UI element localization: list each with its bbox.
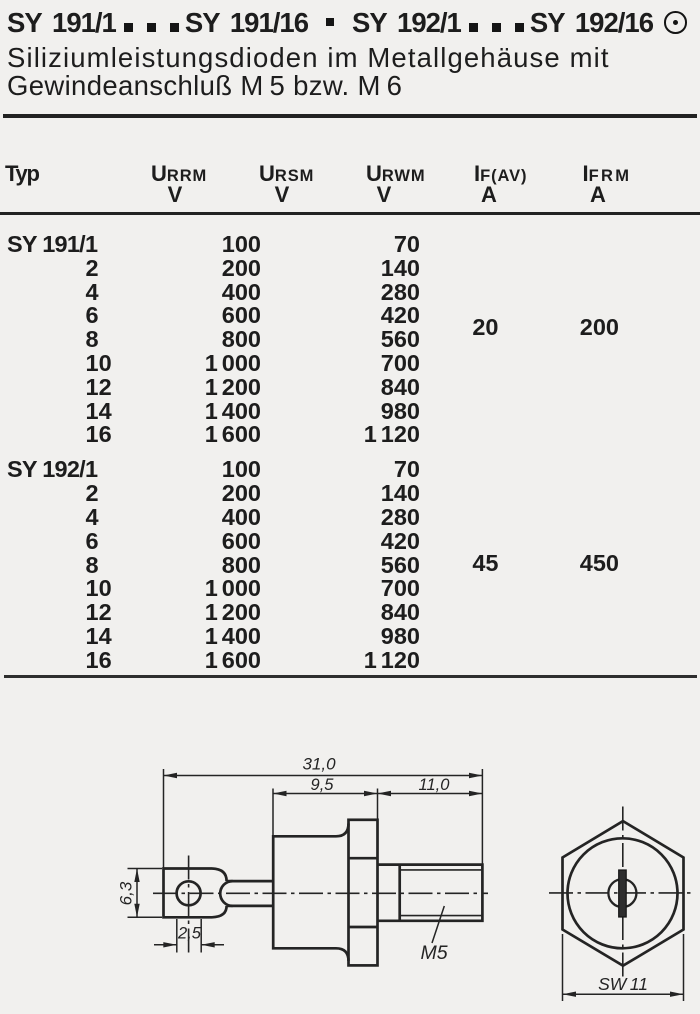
svg-text:SW 11: SW 11 (598, 974, 648, 994)
svg-text:9,5: 9,5 (311, 776, 335, 794)
svg-text:31,0: 31,0 (302, 755, 336, 774)
svg-text:6,3: 6,3 (117, 881, 136, 905)
svg-text:2,5: 2,5 (177, 925, 202, 943)
svg-text:11,0: 11,0 (419, 776, 451, 794)
svg-text:M5: M5 (421, 942, 448, 964)
